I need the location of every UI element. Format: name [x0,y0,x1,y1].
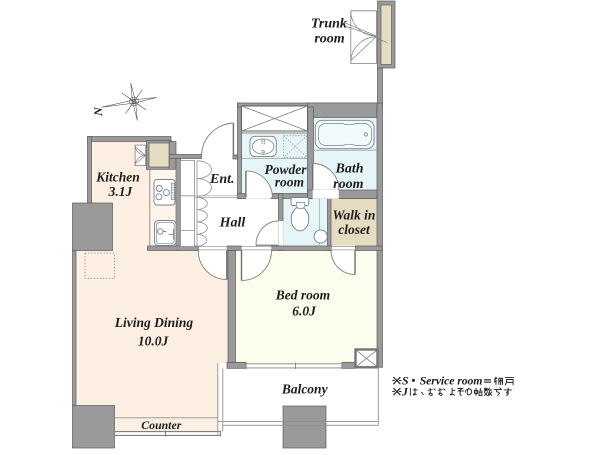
svg-text:6.0J: 6.0J [292,304,317,319]
svg-text:Walk in: Walk in [333,208,376,223]
svg-text:Living Dining: Living Dining [114,315,194,330]
svg-text:room: room [314,31,344,46]
svg-text:10.0J: 10.0J [138,334,170,349]
svg-text:closet: closet [338,222,371,237]
svg-text:room: room [333,177,363,192]
svg-text:3.1J: 3.1J [108,184,134,199]
svg-text:Balcony: Balcony [281,382,329,397]
svg-text:Bath: Bath [334,161,363,176]
svg-text:Ent.: Ent. [209,172,235,187]
svg-text:Service room: Service room [420,373,483,387]
svg-text:N: N [91,106,105,117]
svg-text:room: room [275,175,304,190]
svg-text:Hall: Hall [219,215,246,230]
svg-text:J: J [401,385,409,399]
svg-text:Bed room: Bed room [275,288,330,303]
svg-text:Kitchen: Kitchen [95,170,140,185]
svg-text:Counter: Counter [141,418,181,432]
svg-text:Trunk: Trunk [311,17,347,32]
